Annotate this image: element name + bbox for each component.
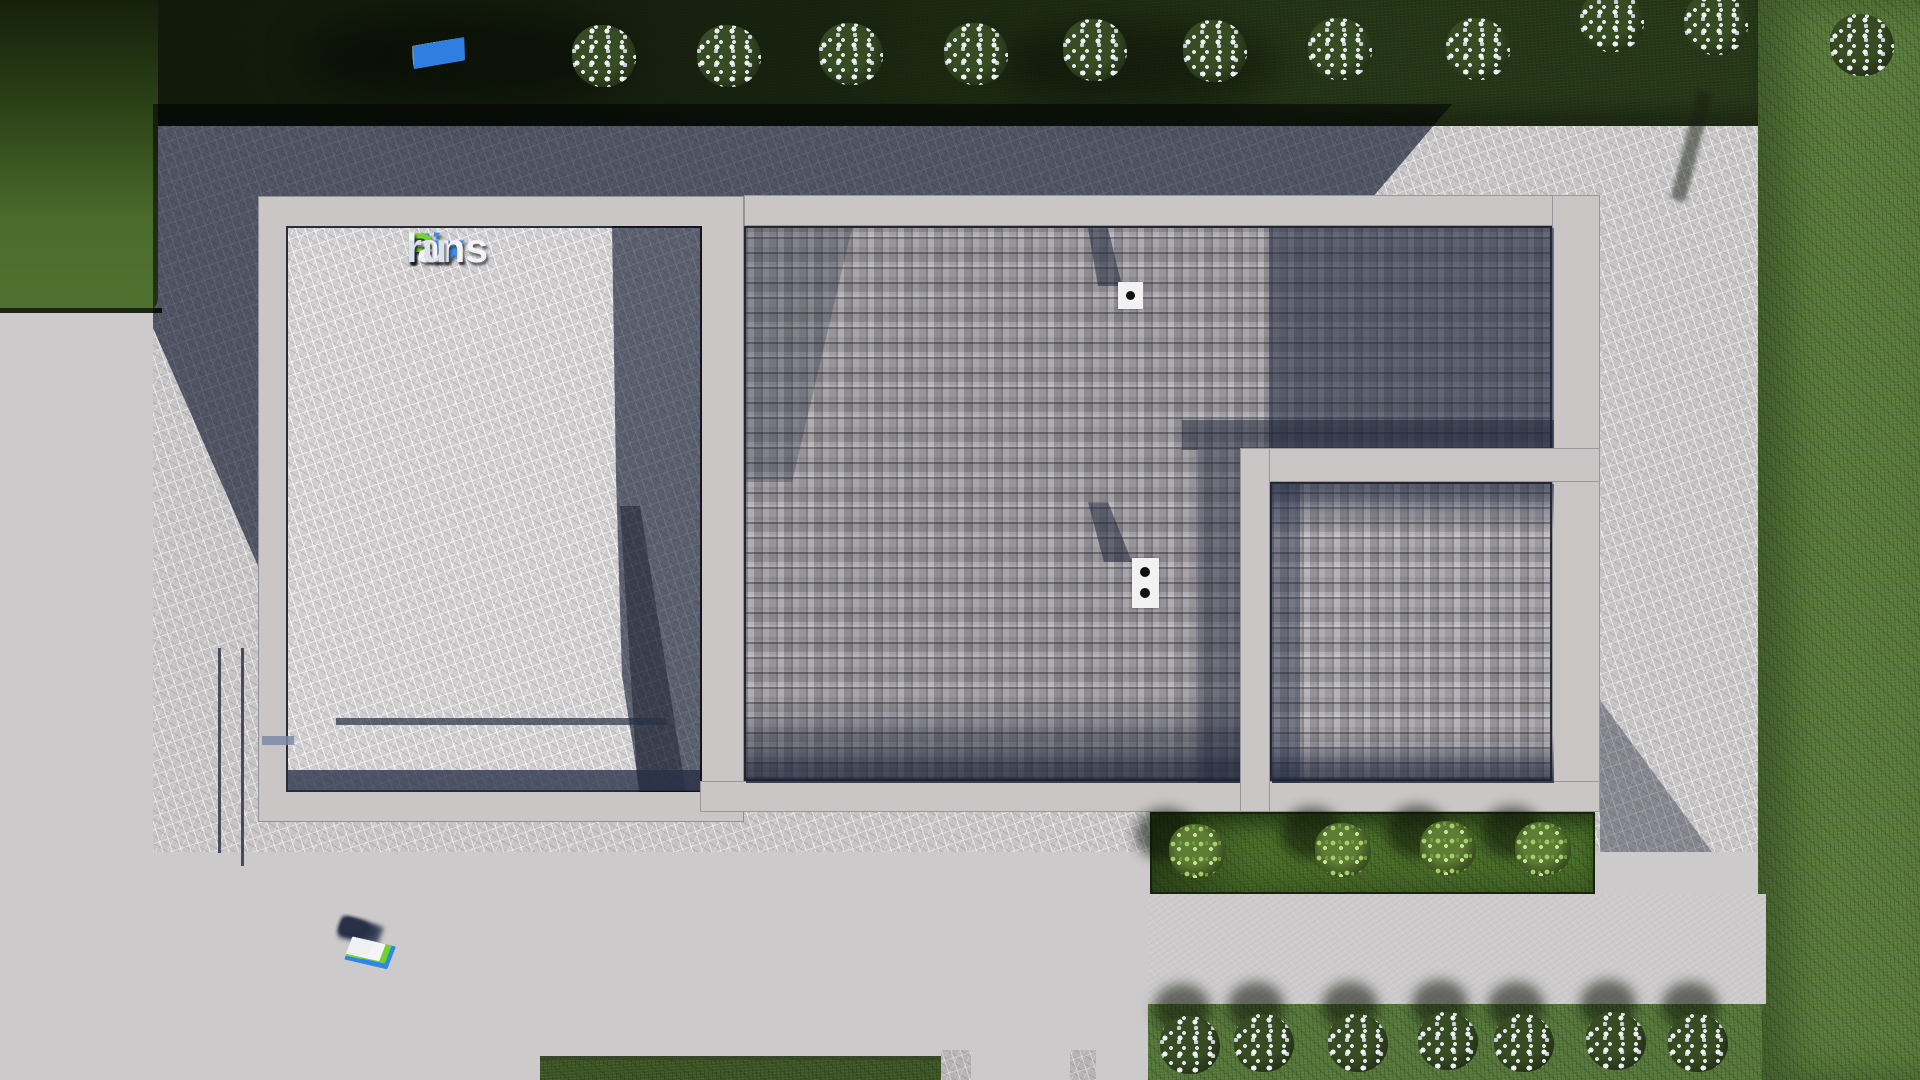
grass-left-edge-line (0, 308, 162, 313)
edge-line-2 (241, 648, 244, 866)
grass-left-block (0, 0, 158, 312)
chimney-large (1132, 558, 1159, 608)
logo-segment-4: ru (406, 226, 447, 270)
roof-frame-top (744, 195, 1600, 226)
inset-frame-vertical (1240, 448, 1270, 812)
chimney-small (1118, 282, 1143, 309)
garden-path (1148, 894, 1766, 1004)
secondary-shingle-roof (1270, 482, 1552, 781)
inset-frame-horizontal (1240, 448, 1600, 482)
terrace-railing-shadow-line (336, 718, 666, 725)
roof-shadow-right-band (1198, 450, 1244, 783)
roof-shadow-top-right (1269, 228, 1554, 450)
secondary-roof-bottom-shadow (1272, 735, 1554, 783)
watermark-bottom (345, 936, 673, 1039)
chimney-small-flue (1126, 291, 1135, 300)
edge-dash (262, 736, 294, 745)
planting-strip (1150, 812, 1595, 894)
roof-frame-bottom (700, 781, 1600, 812)
chimney-large-flue-1 (1140, 567, 1150, 577)
roof-shadow-bottom-band (746, 702, 1244, 783)
fixplans-logo: FixPlans.ru (406, 226, 706, 274)
chimney-large-shadow (1084, 502, 1136, 564)
roof-frame-right (1552, 195, 1600, 812)
site-plan-render: FixPlans.ru (0, 0, 1920, 1080)
secondary-roof-top-shadow (1272, 484, 1554, 530)
chimney-small-shadow (1086, 228, 1126, 288)
walkway-edge-right (1070, 1050, 1096, 1080)
chimney-large-flue-2 (1140, 588, 1150, 598)
terrace-inner-bottom-shadow (288, 770, 700, 791)
roof-shadow-band-above-inset (1182, 420, 1554, 450)
tree-canopy-shadow-2 (1000, 20, 1280, 110)
grass-bottom-right (1148, 1000, 1762, 1080)
grass-bottom-notch (540, 1056, 945, 1080)
grass-right-column (1758, 0, 1920, 1080)
edge-line-1 (218, 648, 221, 853)
roof-shadow-left-wedge (746, 228, 856, 482)
walkway-edge-left (941, 1050, 971, 1080)
